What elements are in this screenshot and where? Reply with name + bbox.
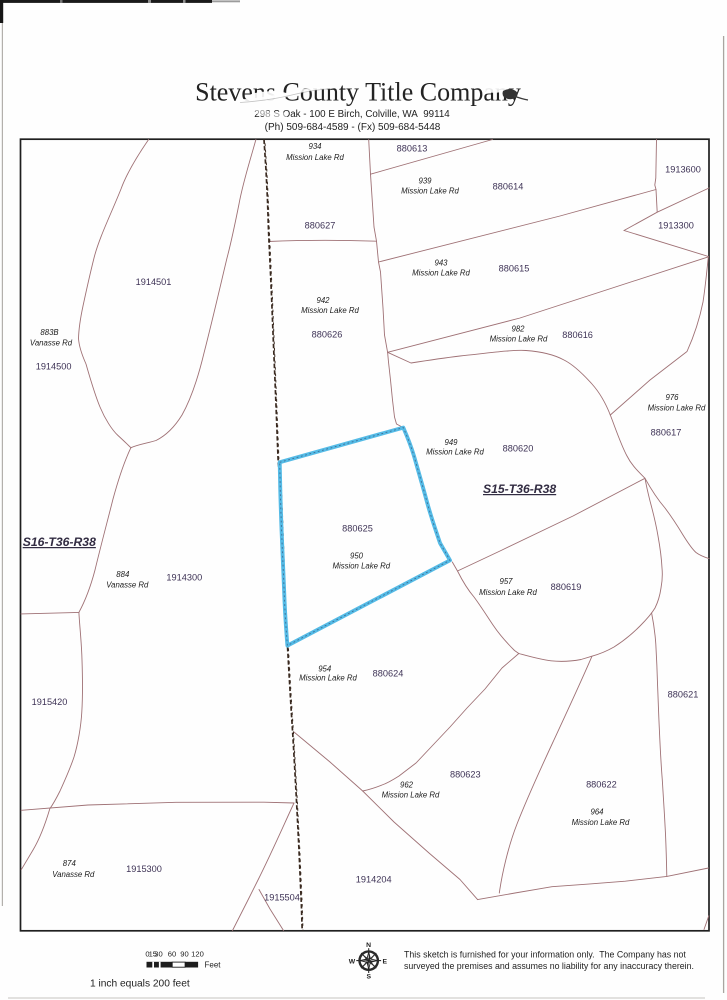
svg-text:Mission Lake Rd: Mission Lake Rd [572, 818, 630, 827]
svg-text:E: E [383, 959, 388, 966]
svg-text:942: 942 [316, 296, 330, 305]
svg-text:954: 954 [318, 665, 332, 674]
svg-text:(Ph) 509-684-4589 - (Fx) 509-6: (Ph) 509-684-4589 - (Fx) 509-684-5448 [265, 122, 441, 133]
svg-text:934: 934 [308, 142, 322, 151]
svg-text:949: 949 [444, 438, 458, 447]
svg-text:S15-T36-R38: S15-T36-R38 [483, 482, 556, 496]
svg-text:Vanasse Rd: Vanasse Rd [106, 581, 149, 590]
svg-text:N: N [366, 942, 371, 949]
svg-text:982: 982 [511, 325, 525, 334]
svg-text:W: W [349, 958, 356, 965]
svg-text:880625: 880625 [342, 523, 373, 533]
svg-text:30: 30 [154, 950, 162, 959]
svg-text:884: 884 [116, 570, 130, 579]
svg-text:880624: 880624 [373, 668, 404, 678]
svg-text:60: 60 [168, 950, 176, 959]
svg-text:880626: 880626 [312, 329, 343, 339]
svg-text:957: 957 [499, 577, 513, 586]
svg-text:880620: 880620 [503, 443, 534, 453]
svg-text:120: 120 [191, 950, 204, 959]
svg-text:Mission Lake Rd: Mission Lake Rd [479, 588, 537, 597]
svg-text:880614: 880614 [493, 181, 524, 191]
svg-text:surveyed the premises and assu: surveyed the premises and assumes no lia… [404, 961, 694, 971]
svg-text:962: 962 [400, 781, 414, 790]
svg-text:1915420: 1915420 [32, 697, 68, 707]
svg-text:S16-T36-R38: S16-T36-R38 [23, 535, 96, 549]
svg-text:Vanasse Rd: Vanasse Rd [30, 339, 73, 348]
svg-text:1914500: 1914500 [36, 361, 72, 371]
svg-text:S: S [367, 974, 372, 981]
svg-text:Mission Lake Rd: Mission Lake Rd [301, 306, 359, 315]
svg-text:Mission Lake Rd: Mission Lake Rd [401, 187, 459, 196]
svg-text:880615: 880615 [499, 263, 530, 273]
svg-text:880622: 880622 [586, 779, 617, 789]
svg-text:883B: 883B [40, 328, 58, 337]
svg-text:880621: 880621 [668, 689, 699, 699]
svg-text:Feet: Feet [205, 961, 222, 970]
svg-text:Mission Lake Rd: Mission Lake Rd [490, 335, 548, 344]
svg-text:1914204: 1914204 [356, 874, 392, 884]
svg-text:90: 90 [180, 950, 188, 959]
svg-text:880627: 880627 [305, 220, 336, 230]
svg-text:1913600: 1913600 [665, 165, 701, 175]
svg-text:Mission Lake Rd: Mission Lake Rd [412, 269, 470, 278]
svg-text:880613: 880613 [397, 144, 428, 154]
svg-text:This sketch is furnished for y: This sketch is furnished for your inform… [404, 950, 686, 960]
svg-text:Mission Lake Rd: Mission Lake Rd [286, 153, 344, 162]
svg-text:880623: 880623 [450, 769, 481, 779]
svg-text:1915300: 1915300 [126, 864, 162, 874]
svg-text:1914300: 1914300 [166, 572, 202, 582]
svg-text:950: 950 [350, 552, 364, 561]
svg-text:874: 874 [63, 859, 77, 868]
svg-text:880617: 880617 [651, 427, 682, 437]
svg-text:1914501: 1914501 [136, 277, 172, 287]
svg-text:1913300: 1913300 [658, 220, 694, 230]
svg-text:Mission Lake Rd: Mission Lake Rd [426, 448, 484, 457]
svg-text:Mission Lake Rd: Mission Lake Rd [648, 404, 706, 413]
svg-text:976: 976 [665, 393, 679, 402]
svg-text:943: 943 [434, 259, 448, 268]
svg-text:964: 964 [590, 808, 604, 817]
svg-text:939: 939 [418, 177, 432, 186]
svg-text:1915504: 1915504 [264, 892, 300, 902]
svg-text:Mission Lake Rd: Mission Lake Rd [299, 674, 357, 683]
svg-text:880619: 880619 [551, 582, 582, 592]
svg-text:1 inch equals 200 feet: 1 inch equals 200 feet [90, 979, 190, 990]
svg-text:Mission Lake Rd: Mission Lake Rd [332, 562, 390, 571]
svg-text:Mission Lake Rd: Mission Lake Rd [382, 791, 440, 800]
svg-text:880616: 880616 [562, 330, 593, 340]
svg-text:Vanasse Rd: Vanasse Rd [52, 870, 95, 879]
